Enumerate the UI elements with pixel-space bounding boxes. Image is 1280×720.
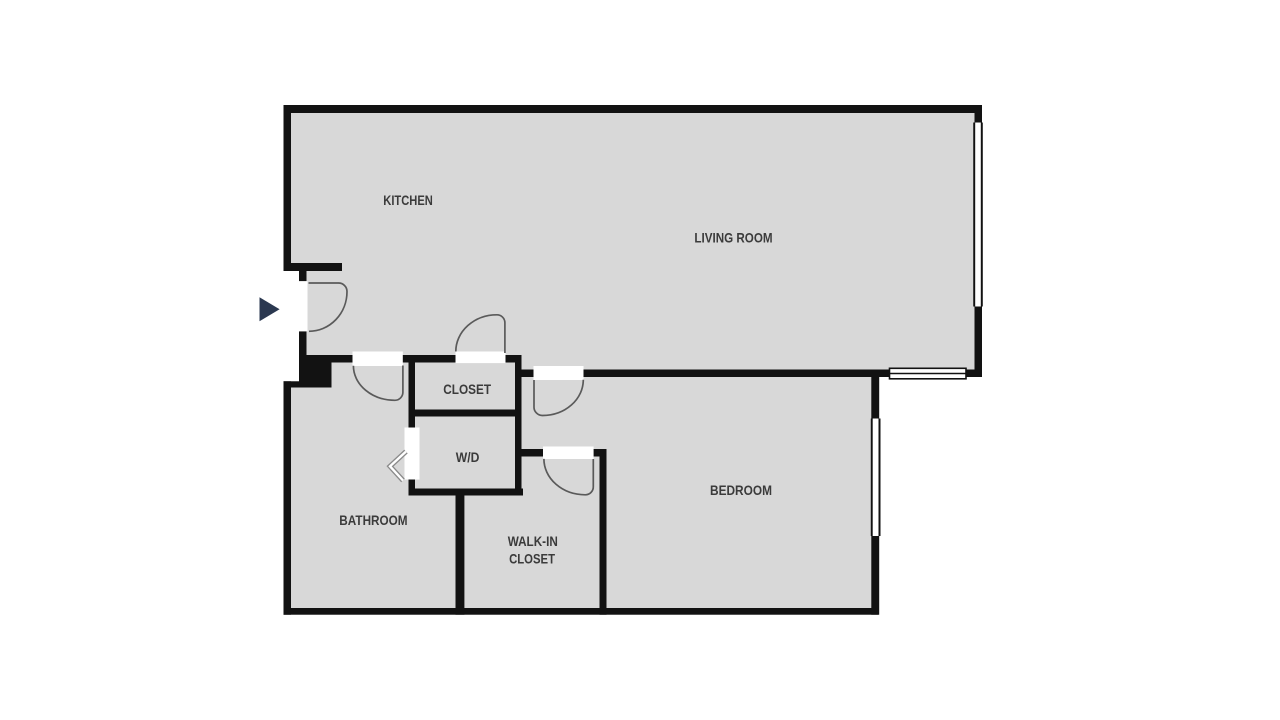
svg-text:BATHROOM: BATHROOM [339,512,407,528]
svg-text:W/D: W/D [456,449,480,465]
svg-text:WALK-IN: WALK-IN [508,533,558,549]
svg-text:LIVING ROOM: LIVING ROOM [694,229,772,245]
svg-text:KITCHEN: KITCHEN [383,192,433,208]
svg-text:CLOSET: CLOSET [509,551,555,567]
svg-text:BEDROOM: BEDROOM [710,482,772,498]
svg-text:CLOSET: CLOSET [443,381,491,397]
